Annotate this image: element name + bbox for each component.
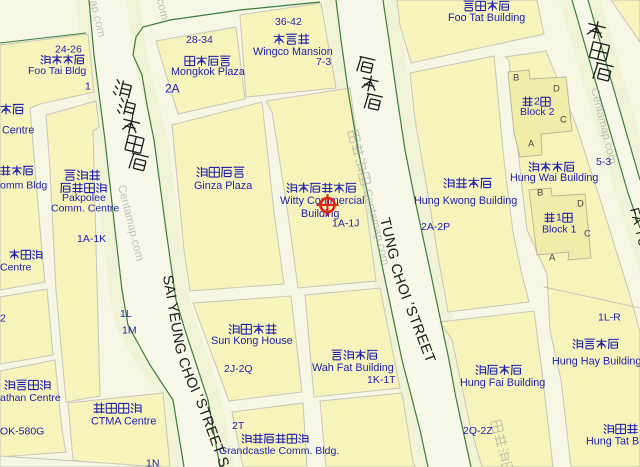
svg-text:28-34: 28-34	[186, 34, 213, 46]
svg-text:C: C	[584, 229, 591, 240]
svg-text:C: C	[560, 115, 567, 126]
svg-text:1M: 1M	[122, 324, 137, 336]
svg-text:Centre: Centre	[2, 125, 34, 137]
svg-text:Mongkok Plaza: Mongkok Plaza	[171, 66, 245, 78]
svg-text:Comm. Centre: Comm. Centre	[51, 202, 119, 214]
svg-text:Wah Fat Building: Wah Fat Building	[312, 362, 394, 374]
svg-text:Block 1: Block 1	[542, 223, 577, 235]
svg-text:Hung Wai Building: Hung Wai Building	[510, 172, 598, 184]
svg-text:OK-580G: OK-580G	[0, 425, 44, 437]
svg-text:24-26: 24-26	[55, 43, 82, 55]
svg-text:1K-1T: 1K-1T	[367, 374, 396, 386]
svg-text:2A: 2A	[165, 82, 180, 96]
svg-text:B: B	[513, 73, 519, 84]
svg-text:2J-2Q: 2J-2Q	[224, 363, 253, 375]
svg-text:7-3: 7-3	[316, 56, 331, 68]
svg-text:D: D	[553, 84, 560, 95]
svg-text:Hung Tat B: Hung Tat B	[586, 436, 639, 448]
svg-text:Hung Hay Building: Hung Hay Building	[552, 356, 640, 368]
svg-text:athan Centre: athan Centre	[0, 392, 61, 404]
svg-text:Sun Kong House: Sun Kong House	[211, 335, 293, 347]
svg-text:Hung Kwong Building: Hung Kwong Building	[414, 195, 517, 207]
svg-text:2: 2	[0, 312, 6, 324]
svg-text:36-42: 36-42	[275, 16, 302, 28]
svg-text:Ginza Plaza: Ginza Plaza	[194, 180, 252, 192]
svg-text:Foo Tat Building: Foo Tat Building	[448, 12, 525, 24]
svg-text:CTMA Centre: CTMA Centre	[91, 416, 156, 428]
svg-text:1A-1J: 1A-1J	[332, 217, 359, 229]
svg-text:5-3: 5-3	[596, 156, 611, 168]
svg-text:A: A	[528, 139, 535, 150]
svg-text:1L: 1L	[120, 308, 132, 320]
svg-text:1N: 1N	[146, 457, 159, 467]
svg-text:Foo Tai Bldg: Foo Tai Bldg	[28, 65, 86, 77]
svg-text:B: B	[537, 188, 543, 199]
svg-text:1L-R: 1L-R	[598, 311, 621, 323]
svg-text:D: D	[577, 199, 584, 210]
svg-text:Centre: Centre	[0, 261, 32, 273]
svg-text:1: 1	[556, 211, 562, 223]
svg-text:A: A	[549, 253, 556, 264]
svg-text:Grandcastle Comm. Bldg.: Grandcastle Comm. Bldg.	[219, 445, 339, 457]
svg-text:2Q-2Z: 2Q-2Z	[463, 425, 493, 437]
svg-text:2T: 2T	[232, 420, 245, 432]
svg-text:omm Bldg: omm Bldg	[0, 179, 47, 191]
svg-text:Hung Fai Building: Hung Fai Building	[460, 377, 545, 389]
svg-text:2A-2P: 2A-2P	[421, 221, 450, 233]
svg-text:Block 2: Block 2	[520, 106, 555, 118]
svg-text:1: 1	[85, 80, 91, 92]
svg-text:1A-1K: 1A-1K	[77, 233, 106, 245]
